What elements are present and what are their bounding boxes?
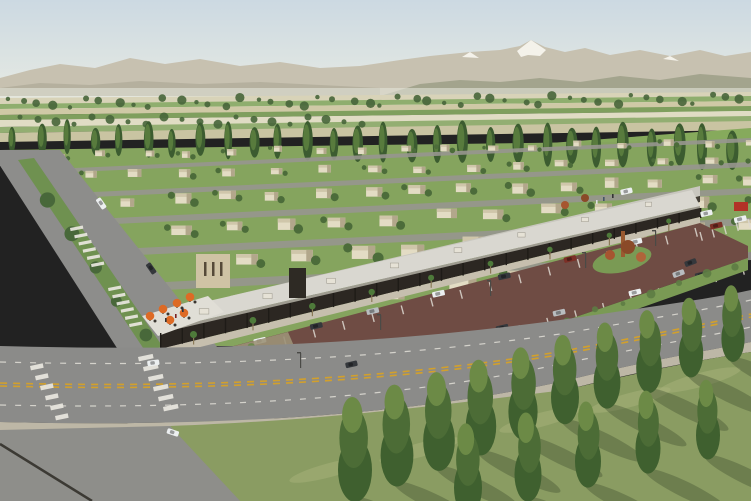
distant-tree xyxy=(6,97,10,101)
arcade-column xyxy=(398,278,399,291)
yard-tree xyxy=(191,230,199,238)
yard-tree xyxy=(221,149,225,153)
poplar-tree-top xyxy=(457,423,474,455)
house-shade xyxy=(188,151,190,158)
yard-tree xyxy=(190,198,199,207)
poplar-tree-highlight xyxy=(727,134,734,161)
orchard-tree xyxy=(359,121,366,128)
house-shade xyxy=(378,166,382,173)
rooftop-unit xyxy=(390,263,398,268)
arcade-column xyxy=(570,238,571,249)
poplar-tree-highlight xyxy=(225,124,230,150)
distant-tree xyxy=(204,101,210,107)
yard-tree xyxy=(482,146,486,150)
aerial-rendering: Aerial 3D rendering of a master-planned … xyxy=(0,0,751,501)
yard-tree xyxy=(561,208,569,216)
distant-tree xyxy=(395,94,401,100)
arcade-column xyxy=(203,323,204,339)
distant-tree xyxy=(502,98,506,102)
pedestrian xyxy=(175,314,177,318)
yard-tree xyxy=(242,226,249,233)
distant-tree xyxy=(351,97,359,105)
yard-tree xyxy=(311,256,321,266)
orchard-tree xyxy=(52,117,61,126)
yard-tree xyxy=(426,169,431,174)
palm-tree xyxy=(666,219,671,224)
distant-tree xyxy=(68,105,72,109)
poplar-tree-top xyxy=(554,335,571,366)
yard-tree xyxy=(190,173,197,180)
house-shade xyxy=(521,162,524,170)
streetlight-head xyxy=(377,314,381,315)
distant-tree xyxy=(223,103,231,111)
orchard-tree xyxy=(234,115,239,120)
yard-tree xyxy=(401,184,407,190)
yard-tree xyxy=(736,175,742,181)
yard-tree xyxy=(382,168,388,174)
yard-tree xyxy=(657,139,662,144)
cafe-table xyxy=(167,313,170,316)
house-shade xyxy=(231,169,235,177)
arcade-column xyxy=(592,233,593,244)
yard-tree xyxy=(470,187,477,194)
arcade-column xyxy=(290,303,291,318)
poplar-tree-top xyxy=(385,385,405,420)
arcade-column xyxy=(246,313,247,328)
house-shade xyxy=(712,141,715,147)
distant-tree xyxy=(235,93,244,102)
yard-tree xyxy=(480,168,486,174)
yard-tree xyxy=(168,192,175,199)
distant-tree xyxy=(116,98,125,107)
orchard-tree xyxy=(89,114,96,121)
yard-tree xyxy=(344,222,352,230)
poplar-tree-highlight xyxy=(544,126,550,156)
house-shade xyxy=(422,167,426,173)
house-shade xyxy=(614,160,618,166)
accent-tree xyxy=(561,201,569,209)
distant-tree xyxy=(21,98,27,104)
orchard-tree xyxy=(214,120,223,129)
yard-tree xyxy=(220,221,226,227)
distant-tree xyxy=(366,99,375,108)
distant-tree xyxy=(534,101,542,109)
house-shade xyxy=(665,158,668,164)
distant-tree xyxy=(629,93,633,97)
orchard-tree xyxy=(180,117,185,122)
house-shade xyxy=(476,165,480,172)
yard-tree xyxy=(669,161,674,166)
house-shade xyxy=(408,146,411,152)
palm-tree xyxy=(488,261,494,267)
poplar-tree-top xyxy=(342,397,362,433)
streetlight-pole xyxy=(380,315,381,330)
arcade-column xyxy=(678,213,679,223)
palm-tree xyxy=(249,317,256,324)
poplar-tree-highlight xyxy=(116,127,120,149)
poplar-tree-highlight xyxy=(592,130,598,158)
orchard-tree xyxy=(18,115,23,120)
umbrella xyxy=(166,316,175,325)
house-shade xyxy=(671,139,674,145)
orchard-tree xyxy=(268,117,277,126)
distant-tree xyxy=(710,92,716,98)
streetlight-pole xyxy=(655,231,656,246)
house-roof xyxy=(743,177,751,180)
streetlight-head xyxy=(582,252,586,253)
house-shade xyxy=(420,185,425,194)
distant-tree xyxy=(547,91,556,100)
yard-tree xyxy=(382,192,390,200)
poplar-tree-highlight xyxy=(567,131,574,156)
house-shade xyxy=(364,148,367,155)
yard-tree xyxy=(526,188,535,197)
orchard-tree xyxy=(126,119,131,124)
distant-tree xyxy=(413,95,421,103)
yard-tree xyxy=(627,145,631,149)
pedestrian xyxy=(603,197,605,201)
rooftop-unit xyxy=(518,233,525,237)
yard-tree xyxy=(674,142,679,147)
distant-tree xyxy=(83,95,89,101)
house-shade xyxy=(714,158,718,164)
distant-tree xyxy=(94,97,102,105)
accent-tree xyxy=(581,194,589,202)
yard-tree xyxy=(412,148,417,153)
yard-tree xyxy=(434,144,439,149)
distant-tree xyxy=(678,97,687,106)
distant-tree xyxy=(32,99,40,107)
poplar-tree-highlight xyxy=(92,130,98,149)
poplar-tree-highlight xyxy=(196,125,202,148)
median-tree xyxy=(40,192,55,207)
poplar-tree-top xyxy=(518,412,534,443)
poplar-tree-top xyxy=(699,380,713,407)
yard-tree xyxy=(568,163,573,168)
cafe-table xyxy=(174,324,177,327)
house-shade xyxy=(579,141,581,147)
poplar-tree-top xyxy=(469,360,487,393)
streetlight-head xyxy=(297,352,301,353)
yard-tree xyxy=(745,158,750,163)
distant-tree xyxy=(131,103,135,107)
shrub xyxy=(592,306,598,312)
arcade-column xyxy=(333,293,334,307)
house-shade xyxy=(324,148,327,154)
poplar-tree-highlight xyxy=(303,124,309,151)
rooftop-unit xyxy=(454,248,462,253)
pedestrian xyxy=(596,200,598,204)
arcade-column xyxy=(462,263,463,276)
rooftop-unit xyxy=(582,217,589,221)
rooftop-unit xyxy=(263,293,272,298)
poplar-tree-highlight xyxy=(330,131,335,153)
orchard-tree xyxy=(305,114,312,121)
rendering-stage: Aerial 3D rendering of a master-planned … xyxy=(0,0,751,501)
yard-tree xyxy=(268,146,272,150)
streetlight-head xyxy=(652,230,656,231)
house-shade xyxy=(93,171,96,178)
house-shade xyxy=(279,146,281,152)
poplar-tree-top xyxy=(427,372,446,406)
house-shade xyxy=(130,198,134,206)
yard-tree xyxy=(212,190,218,196)
house-shade xyxy=(451,209,457,218)
orchard-tree xyxy=(106,115,115,124)
orchard-tree xyxy=(251,116,258,123)
umbrella xyxy=(159,305,168,314)
arcade-column xyxy=(419,273,420,286)
pedestrian xyxy=(165,318,167,322)
arcade-column xyxy=(354,288,355,302)
yard-tree xyxy=(396,221,405,230)
distant-tree xyxy=(722,93,730,101)
yard-tree xyxy=(105,153,110,158)
house-shade xyxy=(327,165,331,173)
tower-slot xyxy=(204,262,207,276)
distant-tree xyxy=(158,94,166,102)
shrub xyxy=(647,289,656,298)
house-shade xyxy=(534,145,537,150)
yard-tree xyxy=(505,182,512,189)
distant-tree xyxy=(329,96,335,102)
yard-tree xyxy=(502,214,510,222)
yard-tree xyxy=(164,224,171,231)
poplar-tree-top xyxy=(578,402,594,432)
distant-tree xyxy=(656,96,664,104)
house-shade xyxy=(233,149,236,155)
yard-tree xyxy=(190,154,195,159)
palm-tree xyxy=(190,331,197,338)
poplar-tree-top xyxy=(512,347,530,379)
orchard-tree xyxy=(72,122,77,127)
yard-tree xyxy=(651,158,655,162)
cafe-table xyxy=(188,317,191,320)
distant-tree xyxy=(458,102,464,108)
distant-tree xyxy=(581,97,587,103)
yard-tree xyxy=(235,195,242,202)
house-shade xyxy=(466,183,470,192)
distant-tree xyxy=(614,99,623,108)
distant-tree xyxy=(315,95,319,99)
yard-tree xyxy=(331,193,339,201)
accent-tree xyxy=(621,240,635,254)
streetlight-pole xyxy=(490,281,491,296)
distant-tree xyxy=(643,94,649,100)
house-shade xyxy=(658,180,662,188)
arcade-column xyxy=(182,328,183,344)
poplar-tree-top xyxy=(724,285,738,311)
arcade-column xyxy=(484,258,485,270)
umbrella xyxy=(180,309,189,318)
umbrella xyxy=(173,299,182,308)
distant-tree xyxy=(594,98,602,106)
distant-tree xyxy=(734,94,743,103)
arcade-column xyxy=(225,318,226,333)
shrub xyxy=(731,263,738,270)
tower-slot xyxy=(212,262,215,276)
house-shade xyxy=(279,168,282,174)
yard-tree xyxy=(450,148,456,154)
streetlight-pole xyxy=(585,253,586,268)
palm-tree xyxy=(369,289,375,295)
house-shade xyxy=(447,145,450,152)
entry-pylon xyxy=(289,268,306,298)
yard-tree xyxy=(587,202,594,209)
house-shade xyxy=(231,191,236,199)
distant-tree xyxy=(568,96,572,100)
orchard-tree xyxy=(288,122,293,127)
arcade-column xyxy=(635,223,636,234)
house-shade xyxy=(495,146,498,151)
poplar-tree-top xyxy=(682,298,697,325)
arcade-column xyxy=(268,308,269,323)
streetlight-head xyxy=(487,280,491,281)
rooftop-unit xyxy=(645,202,651,206)
yard-tree xyxy=(537,147,541,151)
yard-tree xyxy=(256,259,265,268)
yard-tree xyxy=(696,174,702,180)
accent-tree xyxy=(636,252,646,262)
yard-tree xyxy=(719,160,724,165)
poplar-tree-highlight xyxy=(618,125,625,156)
palm-tree xyxy=(547,247,552,252)
yard-tree xyxy=(320,216,327,223)
yard-tree xyxy=(524,166,530,172)
yard-tree xyxy=(176,151,181,156)
distant-tree xyxy=(177,96,186,105)
yard-tree xyxy=(425,189,432,196)
shrub xyxy=(676,280,682,286)
distant-tree xyxy=(48,101,57,110)
monument-sign xyxy=(734,202,748,211)
arcade-column xyxy=(441,268,442,281)
poplar-tree-top xyxy=(639,391,654,419)
house-shade xyxy=(152,151,155,157)
yard-tree xyxy=(343,243,352,252)
yard-tree xyxy=(362,165,367,170)
poplar-tree-highlight xyxy=(169,131,174,151)
distant-tree xyxy=(285,100,293,108)
shrub xyxy=(703,269,712,278)
poplar-tree-highlight xyxy=(38,126,43,147)
arcade-column xyxy=(376,283,377,297)
umbrella xyxy=(146,312,155,321)
shrub xyxy=(621,301,626,306)
poplar-tree-highlight xyxy=(9,129,13,147)
umbrella xyxy=(186,293,195,302)
house-roof xyxy=(746,140,751,142)
poplar-tree-top xyxy=(597,323,613,353)
palm-tree xyxy=(309,303,316,310)
pedestrian xyxy=(182,308,184,312)
house-shade xyxy=(713,175,717,183)
yard-tree xyxy=(155,153,160,158)
distant-tree xyxy=(377,103,381,107)
pedestrian xyxy=(612,194,614,198)
distant-tree xyxy=(257,97,261,101)
rooftop-unit xyxy=(327,278,336,283)
yard-tree xyxy=(79,171,84,176)
yard-tree xyxy=(277,196,284,203)
house-shade xyxy=(137,169,141,177)
yard-tree xyxy=(294,224,303,233)
palm-tree xyxy=(428,275,434,281)
arcade-column xyxy=(614,228,615,239)
house-shade xyxy=(624,143,627,148)
poplar-tree-highlight xyxy=(379,125,384,153)
house-shade xyxy=(187,169,190,177)
house-shade xyxy=(614,177,618,187)
yard-tree xyxy=(715,144,720,149)
accent-tree xyxy=(605,250,615,260)
orchard-tree xyxy=(35,116,42,123)
yard-tree xyxy=(576,187,583,194)
arcade-column xyxy=(657,218,658,228)
arcade-column xyxy=(506,253,507,265)
house-shade xyxy=(564,160,568,166)
poplar-tree-highlight xyxy=(434,128,439,154)
house-shade xyxy=(572,183,577,192)
poplar-tree-highlight xyxy=(145,124,151,149)
house-shade xyxy=(238,222,243,231)
streetlight-pole xyxy=(300,353,301,368)
yard-tree xyxy=(507,162,512,167)
poplar-tree-highlight xyxy=(458,124,465,153)
orchard-tree xyxy=(322,115,331,124)
poplar-tree-top xyxy=(639,310,654,338)
car-windshield xyxy=(150,361,155,365)
arcade-column xyxy=(527,248,528,260)
rooftop-unit xyxy=(199,309,209,314)
distant-tree xyxy=(524,99,530,105)
palm-tree xyxy=(607,233,612,238)
cafe-table xyxy=(194,301,197,304)
yard-tree xyxy=(283,171,288,176)
orchard-tree xyxy=(342,119,347,124)
distant-tree xyxy=(474,92,482,100)
yard-tree xyxy=(215,168,221,174)
distant-tree xyxy=(690,101,694,105)
poplar-tree-highlight xyxy=(250,130,256,151)
distant-tree xyxy=(145,104,151,110)
poplar-tree-highlight xyxy=(64,122,68,146)
distant-tree xyxy=(267,99,273,105)
distant-tree xyxy=(300,101,309,110)
distant-tree xyxy=(442,101,446,105)
distant-tree xyxy=(485,94,494,103)
distant-tree xyxy=(422,96,431,105)
median-tree xyxy=(140,329,153,342)
house-shade xyxy=(102,150,105,156)
tower-slot xyxy=(220,262,223,276)
orchard-tree xyxy=(160,113,169,122)
distant-tree xyxy=(194,100,198,104)
cafe-table xyxy=(154,320,157,323)
arcade-column xyxy=(160,333,161,349)
